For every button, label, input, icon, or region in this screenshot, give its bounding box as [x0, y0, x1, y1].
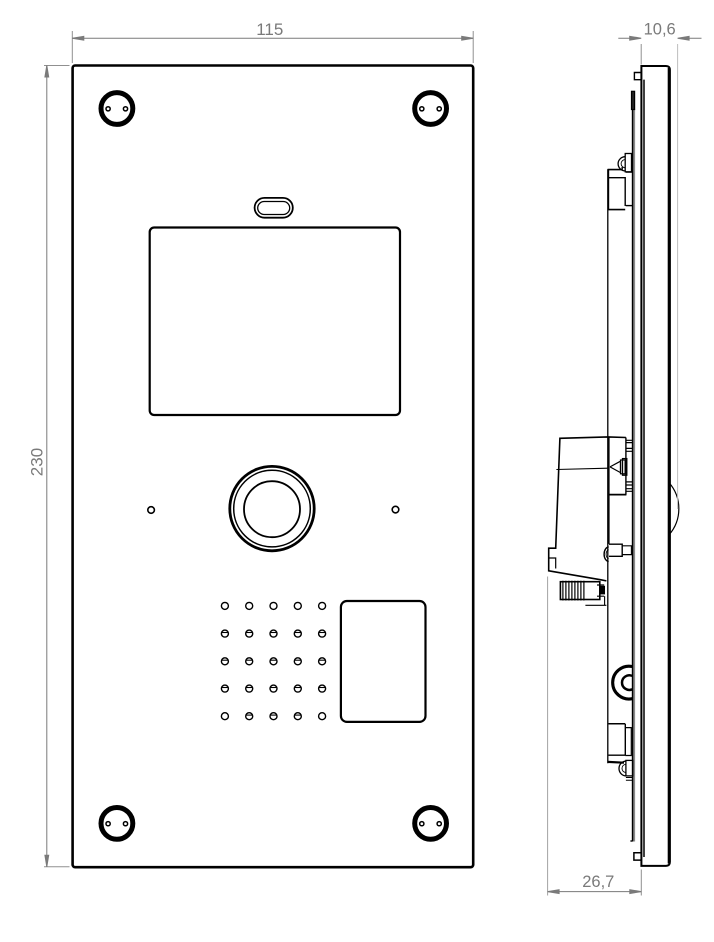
- svg-text:115: 115: [256, 20, 283, 39]
- svg-text:230: 230: [28, 448, 47, 476]
- svg-text:10,6: 10,6: [644, 21, 676, 39]
- svg-text:26,7: 26,7: [582, 873, 614, 891]
